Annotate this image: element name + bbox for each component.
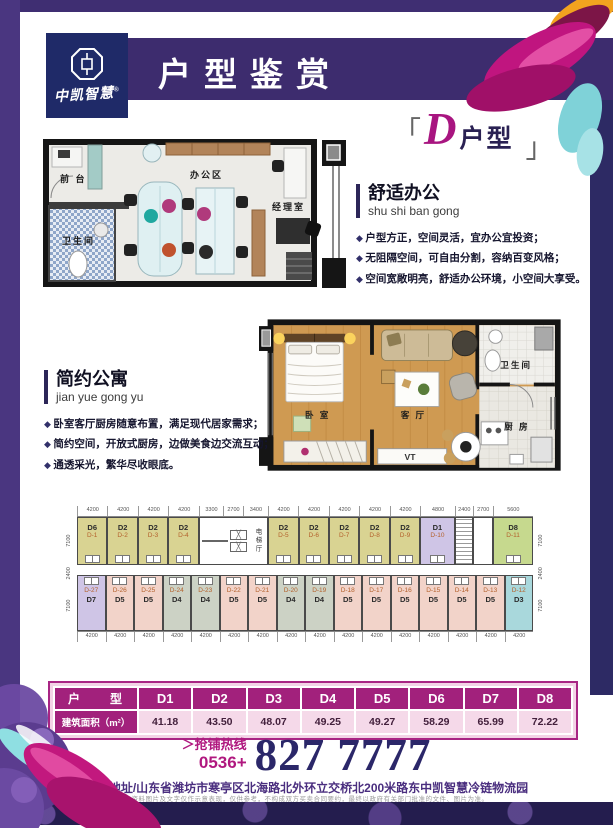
unit-number-label: D-4 xyxy=(178,532,188,540)
bullet-item: 通透采光，繁华尽收眼底。 xyxy=(44,455,289,475)
office-bullets: 户型方正，空间灵活，宜办公宜投资； 无阻隔空间，可自由分割，容纳百变风格； 空间… xyxy=(356,228,588,289)
unit-number-label: D-9 xyxy=(400,532,410,540)
bullet-item: 空间宽敞明亮，舒适办公环境，小空间大享受。 xyxy=(356,269,588,289)
dimension-label: 5600 xyxy=(493,506,533,516)
dimension-label: 4200 xyxy=(277,632,306,642)
unit-D-3: D2D-3 xyxy=(138,517,168,565)
unit-D-12: D-12D3 xyxy=(505,575,534,631)
bathroom-icon xyxy=(306,555,321,563)
unit-D-24: D-24D4 xyxy=(163,575,192,631)
unit-D-25: D-25D5 xyxy=(134,575,163,631)
dimension-label: 4200 xyxy=(191,632,220,642)
table-header-D4: D4 xyxy=(302,688,354,709)
bathroom-icon xyxy=(397,577,412,585)
area-value: 65.99 xyxy=(465,711,517,733)
bathroom-icon xyxy=(198,577,213,585)
office-label-bathroom: 卫生间 xyxy=(62,235,95,246)
unit-type-label: D5 xyxy=(343,595,353,604)
unit-type-label: D2 xyxy=(370,523,380,532)
bathroom-icon xyxy=(337,555,352,563)
elevator-cab-icon: ╳ xyxy=(230,542,246,552)
dimension-label: 4200 xyxy=(248,632,277,642)
bathroom-icon xyxy=(454,577,469,585)
unit-type-label: D2 xyxy=(118,523,128,532)
bathroom-icon xyxy=(430,555,445,563)
unit-D-18: D-18D5 xyxy=(334,575,363,631)
unit-number-label: D-27 xyxy=(84,587,98,595)
unit-type-tag: 「 D 户型 」 xyxy=(393,110,554,166)
bathroom-icon xyxy=(84,577,99,585)
unit-type-label: D4 xyxy=(286,595,296,604)
unit-D-10: D1D-10 xyxy=(420,517,454,565)
bathroom-icon xyxy=(312,577,327,585)
dimension-label: 4200 xyxy=(305,632,334,642)
office-label-office-area: 办公区 xyxy=(190,169,223,180)
office-label-reception: 前 台 xyxy=(60,173,87,184)
dimension-label: 2400 xyxy=(64,565,74,581)
brand-logo: 中凯智慧® xyxy=(46,33,128,118)
unit-number-label: D-10 xyxy=(430,532,444,540)
dimension-label: 4200 xyxy=(505,632,534,642)
bathroom-icon xyxy=(85,555,100,563)
units-row-bottom: D-27D7D-26D5D-25D5D-24D4D-23D4D-22D5D-21… xyxy=(77,575,533,631)
bathroom-icon xyxy=(276,555,291,563)
dimension-label: 2400 xyxy=(536,565,546,581)
dimension-label: 4200 xyxy=(298,506,328,516)
bullet-item: 户型方正，空间灵活，宜办公宜投资； xyxy=(356,228,588,248)
elevator-cab-icon: ╳ xyxy=(230,530,246,540)
dimension-label: 7100 xyxy=(536,581,546,630)
table-header-D6: D6 xyxy=(410,688,462,709)
unit-type-label: D4 xyxy=(314,595,324,604)
units-row-top: D6D-1D2D-2D2D-3D2D-4╳╳电梯厅D2D-5D2D-6D2D-7… xyxy=(77,517,533,565)
table-header-D3: D3 xyxy=(248,688,300,709)
apartment-label-tv-cabinet: VT xyxy=(405,452,417,462)
unit-type-label: D2 xyxy=(279,523,289,532)
unit-D-14: D-14D5 xyxy=(448,575,477,631)
bathroom-icon xyxy=(115,555,130,563)
unit-number-label: D-7 xyxy=(339,532,349,540)
apartment-section-pinyin: jian yue gong yu xyxy=(56,390,289,404)
unit-number-label: D-20 xyxy=(284,587,298,595)
unit-type-label: D4 xyxy=(172,595,182,604)
dimension-label: 4200 xyxy=(168,506,198,516)
unit-D-6: D2D-6 xyxy=(299,517,329,565)
unit-type-label: D2 xyxy=(400,523,410,532)
bullet-item: 简约空间，开放式厨房，边做美食边交流互动； xyxy=(44,434,289,454)
apartment-section: 简约公寓 jian yue gong yu 卧室客厅厨房随意布置，满足现代居家需… xyxy=(44,370,289,475)
unit-type-label: D5 xyxy=(428,595,438,604)
bathroom-icon xyxy=(398,555,413,563)
unit-type-label: D8 xyxy=(508,523,518,532)
dimension-column-right: 710024007100 xyxy=(536,516,546,630)
unit-type-label: D5 xyxy=(457,595,467,604)
bathroom-icon xyxy=(226,577,241,585)
table-header-D7: D7 xyxy=(465,688,517,709)
unit-number-label: D-6 xyxy=(309,532,319,540)
bathroom-icon xyxy=(506,555,521,563)
unit-D-1: D6D-1 xyxy=(77,517,107,565)
dimension-label: 4200 xyxy=(334,632,363,642)
unit-D-9: D2D-9 xyxy=(390,517,420,565)
bathroom-icon xyxy=(146,555,161,563)
unit-number-label: D-21 xyxy=(255,587,269,595)
floor-plate-plan: 4200420042004200330027003400420042004200… xyxy=(77,505,533,643)
dimension-label: 2400 xyxy=(455,506,473,516)
dimension-label: 4200 xyxy=(329,506,359,516)
unit-D-11: D8D-11 xyxy=(493,517,533,565)
unit-number-label: D-3 xyxy=(148,532,158,540)
unit-D-7: D2D-7 xyxy=(329,517,359,565)
petal-decoration-bottom-left xyxy=(0,648,206,828)
office-section-title: 舒适办公 xyxy=(368,184,588,204)
unit-number-label: D-18 xyxy=(341,587,355,595)
unit-type-label: D2 xyxy=(148,523,158,532)
dimension-label: 7100 xyxy=(64,581,74,630)
unit-D-21: D-21D5 xyxy=(248,575,277,631)
dimension-label: 4800 xyxy=(420,506,455,516)
apartment-label-living: 客 厅 xyxy=(400,409,426,420)
dimension-label: 4200 xyxy=(107,506,137,516)
bullet-item: 无阻隔空间，可自由分割，容纳百变风格； xyxy=(356,248,588,268)
bathroom-icon xyxy=(176,555,191,563)
hotline-number: 827 7777 xyxy=(255,735,432,776)
unit-number-label: D-19 xyxy=(312,587,326,595)
dimension-label: 4200 xyxy=(419,632,448,642)
brand-name: 中凯智慧® xyxy=(53,82,120,107)
bathroom-icon xyxy=(369,577,384,585)
coin-seal-icon xyxy=(70,47,104,81)
dimension-label: 3300 xyxy=(199,506,223,516)
dimension-label: 4200 xyxy=(476,632,505,642)
unit-D-27: D-27D7 xyxy=(77,575,106,631)
unit-type-label: D5 xyxy=(371,595,381,604)
unit-D-23: D-23D4 xyxy=(191,575,220,631)
unit-number-label: D-1 xyxy=(87,532,97,540)
unit-D-4: D2D-4 xyxy=(168,517,198,565)
unit-number-label: D-25 xyxy=(141,587,155,595)
unit-type-label: D6 xyxy=(87,523,97,532)
office-section-head: 舒适办公 shu shi ban gong xyxy=(356,184,588,218)
apartment-section-title: 简约公寓 xyxy=(56,370,289,390)
dimension-label: 4200 xyxy=(134,632,163,642)
bathroom-icon xyxy=(255,577,270,585)
office-label-manager: 经理室 xyxy=(272,201,305,212)
unit-number-label: D-13 xyxy=(483,587,497,595)
unit-number-label: D-15 xyxy=(426,587,440,595)
dimension-label: 4200 xyxy=(268,506,298,516)
unit-type-label: D5 xyxy=(257,595,267,604)
unit-type-label: D2 xyxy=(179,523,189,532)
dimension-label: 7100 xyxy=(64,516,74,565)
bracket-open: 「 xyxy=(393,110,421,150)
unit-D-8: D2D-8 xyxy=(359,517,389,565)
page-title: 户型鉴赏 xyxy=(130,48,370,96)
dimension-label: 4200 xyxy=(448,632,477,642)
unit-number-label: D-14 xyxy=(455,587,469,595)
unit-number-label: D-24 xyxy=(170,587,184,595)
unit-D-13: D-13D5 xyxy=(476,575,505,631)
unit-type-label: D5 xyxy=(229,595,239,604)
dimension-label: 7100 xyxy=(536,516,546,565)
unit-number-label: D-2 xyxy=(117,532,127,540)
apartment-floorplan: 卧 室 客 厅 卫生间 厨 房 VT xyxy=(259,314,575,478)
unit-type-label: D1 xyxy=(433,523,443,532)
stairwell-cell xyxy=(455,517,473,565)
unit-number-label: D-8 xyxy=(369,532,379,540)
dimension-label: 3400 xyxy=(243,506,268,516)
apartment-bullets: 卧室客厅厨房随意布置，满足现代居家需求； 简约空间，开放式厨房，边做美食边交流互… xyxy=(44,414,289,475)
bathroom-icon xyxy=(367,555,382,563)
unit-type-label: D5 xyxy=(143,595,153,604)
unit-D-5: D2D-5 xyxy=(268,517,298,565)
corridor xyxy=(77,565,533,575)
dimension-label: 2700 xyxy=(223,506,243,516)
elevator-hall-label: 电梯厅 xyxy=(249,528,265,554)
bathroom-icon xyxy=(141,577,156,585)
dimension-label: 4200 xyxy=(220,632,249,642)
apartment-label-kitchen: 厨 房 xyxy=(504,421,529,432)
unit-number-label: D-11 xyxy=(506,532,520,540)
office-section-pinyin: shu shi ban gong xyxy=(368,204,588,218)
unit-D-2: D2D-2 xyxy=(107,517,137,565)
dimension-label: 2700 xyxy=(473,506,493,516)
bathroom-icon xyxy=(340,577,355,585)
unit-number-label: D-26 xyxy=(113,587,127,595)
office-floorplan: 前 台 办公区 经理室 卫生间 xyxy=(38,132,348,294)
unit-D-20: D-20D4 xyxy=(277,575,306,631)
unit-type-label: D7 xyxy=(86,595,96,604)
bracket-close: 」 xyxy=(526,126,554,166)
unit-number-label: D-16 xyxy=(398,587,412,595)
unit-D-16: D-16D5 xyxy=(391,575,420,631)
dimension-label: 4200 xyxy=(391,632,420,642)
unit-type-label: D2 xyxy=(339,523,349,532)
table-header-D8: D8 xyxy=(519,688,571,709)
right-border-stripe xyxy=(590,100,613,695)
unit-number-label: D-12 xyxy=(512,587,526,595)
bathroom-icon xyxy=(483,577,498,585)
elevator-core: ╳╳电梯厅 xyxy=(199,517,269,565)
dimension-label: 4200 xyxy=(77,632,106,642)
unit-type-label: D2 xyxy=(309,523,319,532)
dimension-label: 4200 xyxy=(163,632,192,642)
elevator-shaft-icon: ╳╳ xyxy=(230,530,246,552)
bathroom-icon xyxy=(112,577,127,585)
unit-type-label: D5 xyxy=(115,595,125,604)
apartment-section-head: 简约公寓 jian yue gong yu xyxy=(44,370,289,404)
unit-number-label: D-22 xyxy=(227,587,241,595)
bullet-item: 卧室客厅厨房随意布置，满足现代居家需求； xyxy=(44,414,289,434)
dimension-row-top: 4200420042004200330027003400420042004200… xyxy=(77,505,533,517)
staircase-icon xyxy=(202,540,229,542)
unit-number-label: D-17 xyxy=(369,587,383,595)
unit-D-22: D-22D5 xyxy=(220,575,249,631)
bathroom-icon xyxy=(426,577,441,585)
unit-suffix: 户型 xyxy=(460,119,514,155)
dimension-label: 4200 xyxy=(390,506,420,516)
unit-type-label: D5 xyxy=(485,595,495,604)
unit-type-label: D3 xyxy=(514,595,524,604)
unit-number-label: D-5 xyxy=(278,532,288,540)
unit-type-label: D5 xyxy=(400,595,410,604)
dimension-column-left: 710024007100 xyxy=(64,516,74,630)
unit-D-26: D-26D5 xyxy=(106,575,135,631)
apartment-label-bedroom: 卧 室 xyxy=(305,409,330,420)
unit-number-label: D-23 xyxy=(198,587,212,595)
unit-type-label: D4 xyxy=(200,595,210,604)
dimension-label: 4200 xyxy=(362,632,391,642)
table-header-D5: D5 xyxy=(356,688,408,709)
unit-D-17: D-17D5 xyxy=(362,575,391,631)
bathroom-icon xyxy=(169,577,184,585)
unit-letter: D xyxy=(424,110,457,148)
bathroom-icon xyxy=(511,577,526,585)
bathroom-icon xyxy=(283,577,298,585)
dimension-label: 4200 xyxy=(106,632,135,642)
dimension-label: 4200 xyxy=(77,506,107,516)
service-cell xyxy=(473,517,493,565)
dimension-row-bottom: 4200420042004200420042004200420042004200… xyxy=(77,631,533,643)
office-section: 舒适办公 shu shi ban gong 户型方正，空间灵活，宜办公宜投资； … xyxy=(356,184,588,289)
area-value: 72.22 xyxy=(519,711,571,733)
dimension-label: 4200 xyxy=(138,506,168,516)
dimension-label: 4200 xyxy=(359,506,389,516)
unit-D-15: D-15D5 xyxy=(419,575,448,631)
apartment-label-bathroom: 卫生间 xyxy=(500,359,532,370)
unit-D-19: D-19D4 xyxy=(305,575,334,631)
